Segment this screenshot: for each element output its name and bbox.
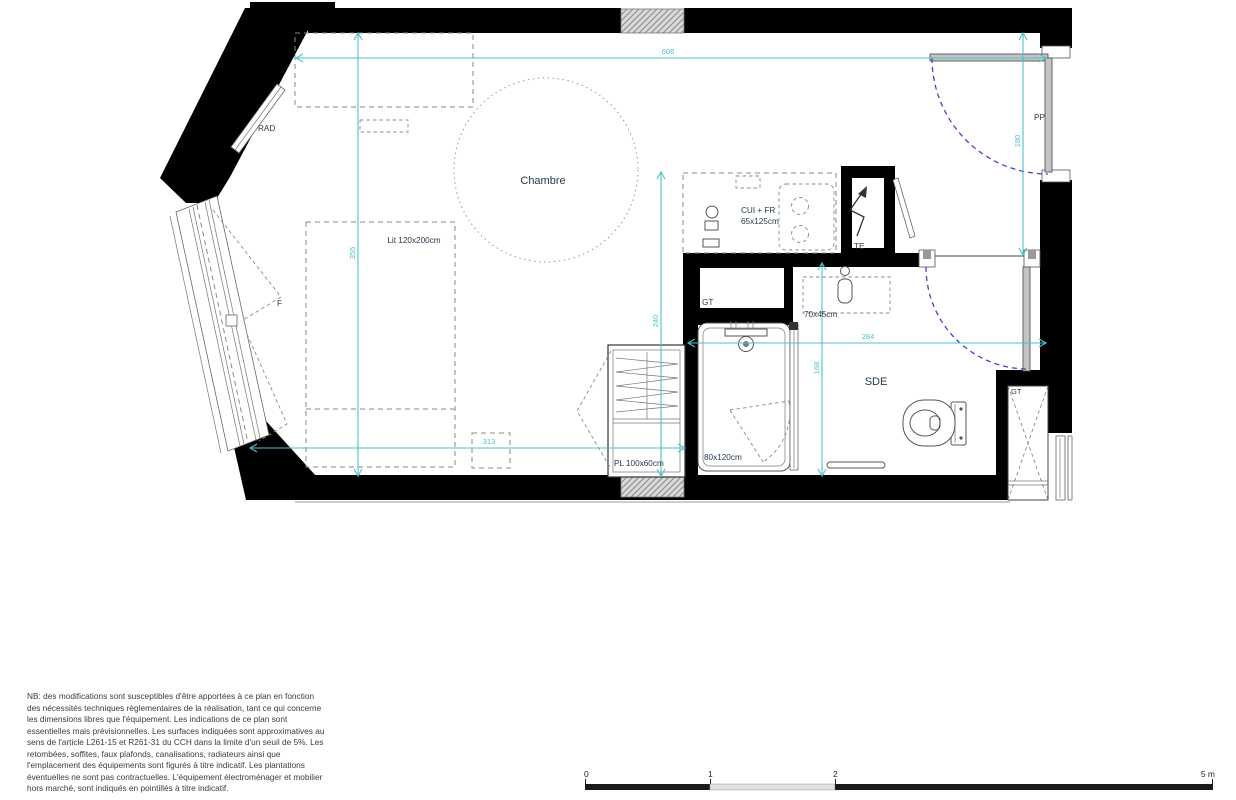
label-gt-corner: GT [1011, 387, 1022, 396]
wall-gt-corner-left [996, 386, 1008, 500]
sde-door-jamb-left-core [923, 250, 931, 259]
wall-diagonal-upper-left [160, 8, 316, 203]
window-bay [170, 196, 287, 453]
washbasin-outline [803, 277, 890, 313]
toilet [903, 400, 966, 446]
disclaimer-line: l'emplacement des équipements sont figur… [27, 760, 347, 772]
wall-top-left [308, 8, 621, 33]
toilet-fixing-dot-2 [959, 436, 962, 439]
label-entry-door-pp: PP [1034, 113, 1045, 122]
washbasin-bowl [838, 279, 852, 303]
label-rad: RAD [258, 124, 275, 133]
scale-segment-0-1 [585, 784, 710, 790]
room-label-chambre: Chambre [520, 175, 565, 187]
label-te: TE [854, 242, 865, 251]
towel-bar [827, 462, 885, 468]
room-label-sde: SDE [865, 376, 888, 388]
disclaimer-line: sens de l'article L261-15 et R261-31 du … [27, 737, 347, 749]
sde-door-swing-arc [926, 267, 1028, 369]
column-hatch-bottom [621, 475, 684, 497]
gt-corner-shaft [1008, 386, 1048, 500]
disclaimer-line: NB: des modifications sont susceptibles … [27, 691, 347, 703]
label-kitchen-line2: 65x125cm [741, 217, 779, 226]
dim-313-text: 313 [483, 437, 496, 446]
label-closet: PL 100x60cm [614, 459, 664, 468]
dim-355-text: 355 [348, 247, 357, 260]
label-bed: Lit 120x200cm [387, 236, 440, 245]
label-kitchen-line1: CUI + FR [741, 206, 775, 215]
wall-gt-corner-top [996, 370, 1048, 386]
wall-top-corner [1040, 8, 1072, 48]
dim-284-text: 284 [862, 332, 875, 341]
dim-168-text: 168 [812, 362, 821, 375]
washbasin-tap [841, 267, 850, 276]
floor-plan-page: 606 355 240 313 284 168 180 Chambre [0, 0, 1236, 800]
corner-window-frame-2 [1068, 436, 1072, 500]
closet-opening [577, 351, 611, 469]
scale-bar: 0 1 2 5 m [584, 769, 1215, 790]
corner-window-frame-1 [1056, 436, 1065, 500]
disclaimer-line: essentielles mais prévisionnelles. Les s… [27, 726, 347, 738]
kitchen-top-box [736, 176, 760, 188]
te-cabinet-door [893, 178, 915, 238]
kitchen-hob [703, 239, 719, 247]
scale-label-0: 0 [584, 769, 589, 779]
label-basin: 70x45cm [804, 310, 837, 319]
scale-label-5m: 5 m [1201, 769, 1215, 779]
corner-window [1056, 436, 1072, 500]
label-shower: 80x120cm [704, 453, 742, 462]
window-mullion [226, 315, 237, 326]
disclaimer-line: retombées, soffites, faux plafonds, cana… [27, 749, 347, 761]
sde-door-leaf [1023, 267, 1030, 371]
disclaimer-line: les dimensions libres que l'équipement. … [27, 714, 347, 726]
toilet-bowl [903, 400, 955, 446]
kitchen-sink-drainer [705, 221, 718, 230]
dim-240-text: 240 [651, 315, 660, 328]
washbasin [803, 267, 890, 314]
dim-606-text: 606 [662, 47, 675, 56]
scale-label-2: 2 [833, 769, 838, 779]
wall-top-right [684, 8, 1040, 33]
fridge-burner-2 [792, 226, 809, 243]
scale-segment-1-2 [710, 784, 835, 790]
kitchen-sink [706, 206, 718, 218]
bed-outline [306, 222, 455, 467]
column-hatch-top [621, 9, 684, 33]
fridge-burner-1 [792, 198, 809, 215]
label-window-f: F [277, 299, 282, 308]
scale-segment-2-5 [835, 784, 1213, 790]
scale-label-1: 1 [708, 769, 713, 779]
desk-outline [295, 33, 473, 107]
fridge-outline [779, 184, 834, 250]
disclaimer-line: éventuelles ne sont pas contractuelles. … [27, 772, 347, 784]
shower-drain-inner [743, 341, 749, 347]
toilet-fixing-dot-1 [959, 407, 962, 410]
sde-door-jamb-right-core [1028, 250, 1036, 259]
disclaimer-line: des nécessités techniques règlementaires… [27, 703, 347, 715]
chair-outline [360, 120, 408, 132]
floor-plan-svg: 606 355 240 313 284 168 180 Chambre [0, 0, 1236, 800]
disclaimer-line: hors marché, sont indiqués en pointillés… [27, 783, 347, 795]
shower-glass-fixing [789, 322, 798, 330]
disclaimer-note: NB: des modifications sont susceptibles … [27, 691, 347, 795]
entry-door-swing-arc [932, 58, 1048, 174]
dim-180-text: 180 [1013, 135, 1022, 148]
label-gt-kitchen: GT [702, 298, 713, 307]
entry-door-leaf-closed [1045, 58, 1052, 172]
round-table-outline [454, 78, 638, 262]
closet [577, 345, 685, 477]
furniture [295, 33, 638, 468]
